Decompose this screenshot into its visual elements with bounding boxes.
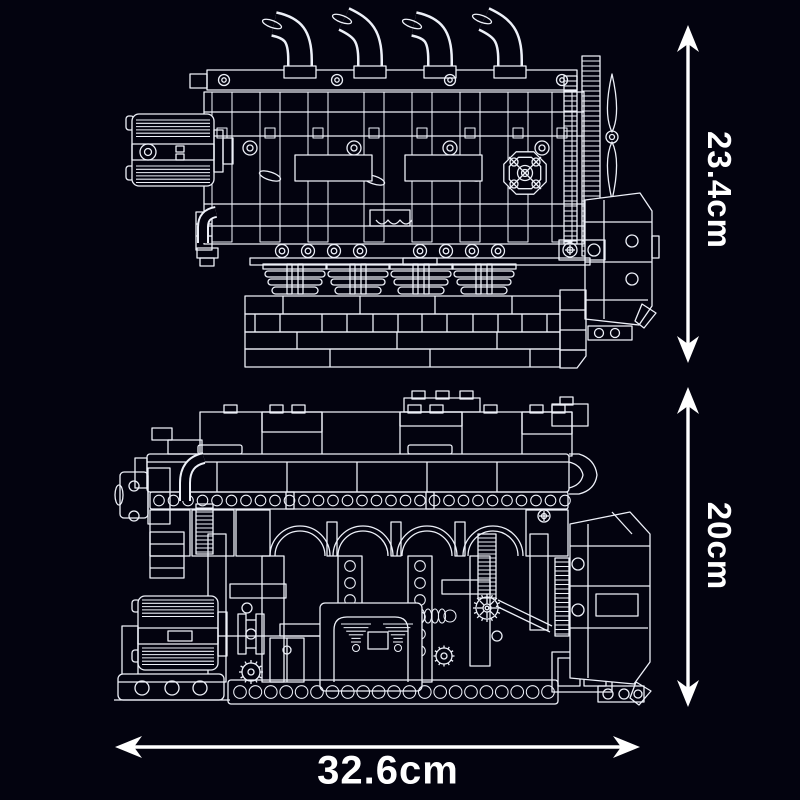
cylinder-arches [270, 526, 523, 556]
mount-screws [276, 245, 505, 258]
top-plates [200, 391, 588, 456]
fan-icon [606, 74, 618, 200]
width-dimension-label: 32.6cm [317, 749, 459, 794]
valve-cover [135, 445, 597, 494]
battery-box [320, 603, 422, 691]
valve-cover-right [405, 155, 482, 181]
side-height-dimension-label: 20cm [700, 502, 738, 590]
engine-front-view-illustration [112, 8, 652, 368]
motor-icon-side [122, 596, 227, 680]
cam-wheel-icon [504, 152, 546, 194]
brick-base [245, 296, 560, 367]
sun-gear-icon [473, 594, 501, 622]
front-height-dimension-label: 23.4cm [700, 131, 738, 249]
product-dimension-figure: 23.4cm 20cm 32.6cm [0, 0, 800, 800]
engine-side-view-illustration [112, 386, 652, 716]
valve-cover-left [295, 155, 372, 181]
pulley-icon [238, 614, 264, 654]
pin-holes [154, 495, 571, 506]
base-foot [114, 674, 230, 700]
mid-gear-icon [434, 646, 455, 667]
motor-icon [126, 114, 233, 186]
bellhousing [559, 193, 659, 340]
studs [224, 391, 573, 413]
intake-trumpets-icon [263, 264, 516, 294]
